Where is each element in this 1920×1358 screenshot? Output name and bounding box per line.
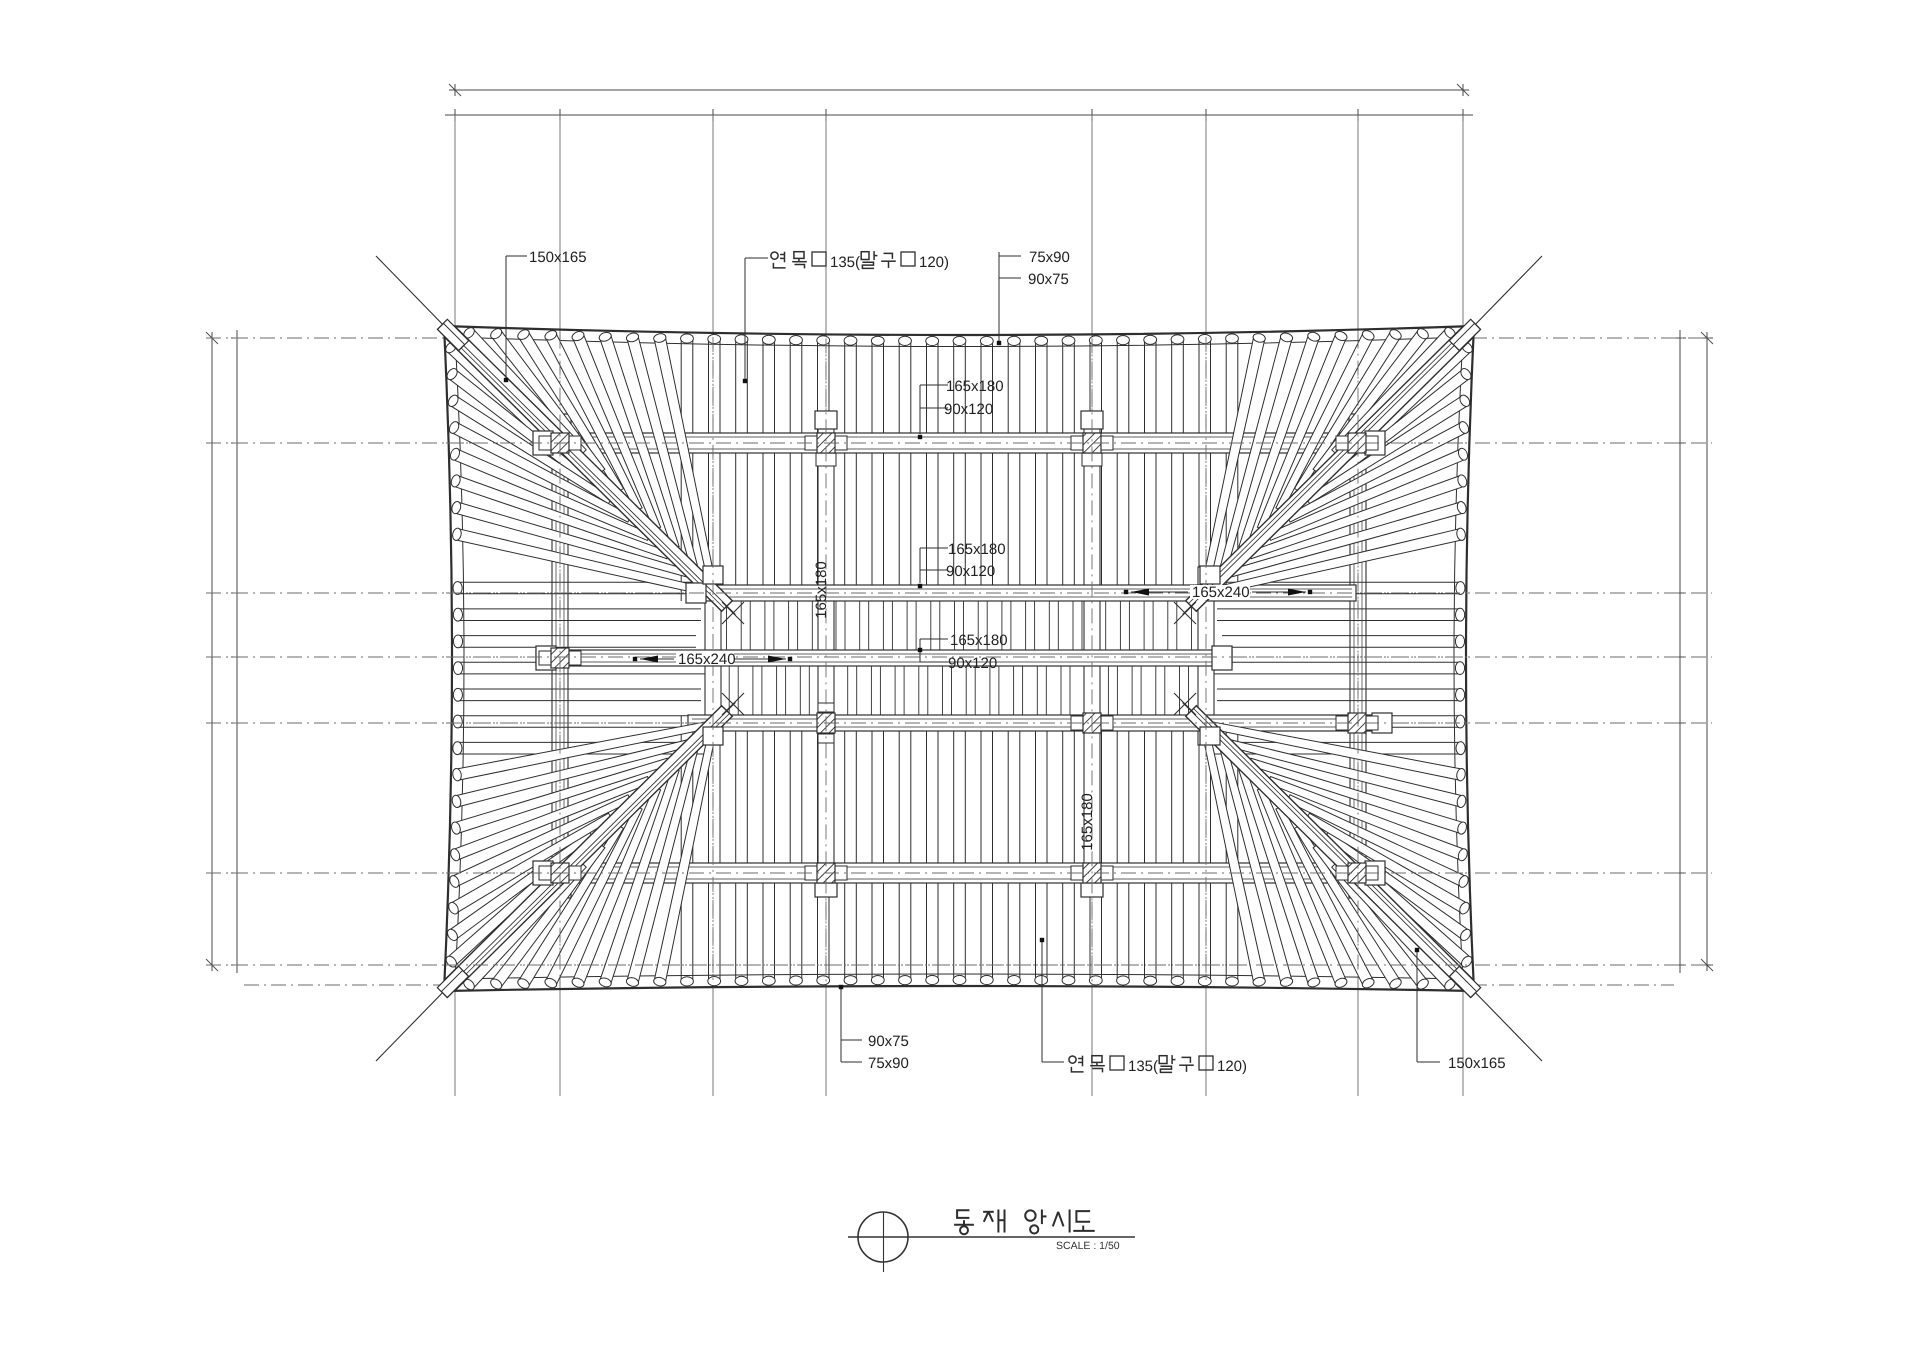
svg-text:SCALE : 1/50: SCALE : 1/50 [1056,1240,1120,1252]
svg-text:75x90: 75x90 [868,1055,909,1072]
svg-text:165x180: 165x180 [948,541,1006,558]
svg-text:165x240: 165x240 [678,651,736,668]
svg-text:165x180: 165x180 [950,632,1008,649]
svg-text:90x75: 90x75 [868,1033,909,1050]
svg-text:135(: 135( [1128,1058,1158,1075]
svg-text:165x180: 165x180 [1079,793,1096,851]
svg-text:90x120: 90x120 [946,563,995,580]
svg-text:90x120: 90x120 [948,655,997,672]
svg-text:165x240: 165x240 [1192,584,1250,601]
svg-text:135(: 135( [830,254,860,271]
svg-text:150x165: 150x165 [1448,1055,1506,1072]
svg-text:75x90: 75x90 [1029,249,1070,266]
svg-text:150x165: 150x165 [529,249,587,266]
svg-text:120): 120) [919,254,949,271]
svg-text:90x120: 90x120 [944,401,993,418]
svg-text:165x180: 165x180 [946,378,1004,395]
svg-text:90x75: 90x75 [1028,271,1069,288]
svg-text:120): 120) [1217,1058,1247,1075]
svg-text:165x180: 165x180 [813,561,830,619]
